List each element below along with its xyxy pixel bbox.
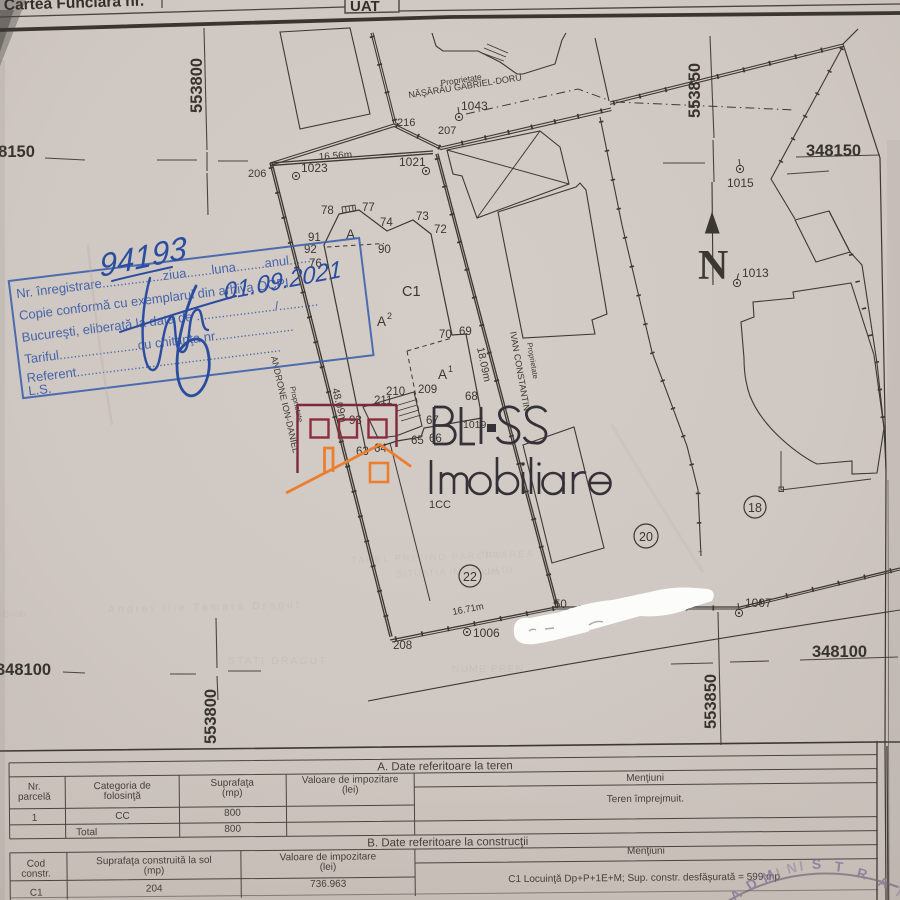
svg-text:800: 800 xyxy=(224,808,241,819)
svg-text:C1: C1 xyxy=(30,888,43,899)
svg-text:65: 65 xyxy=(411,435,424,447)
svg-text:L.S.: L.S. xyxy=(27,381,52,399)
svg-text:1013: 1013 xyxy=(742,266,769,280)
svg-text:208: 208 xyxy=(393,640,412,652)
svg-text:tice: tice xyxy=(482,548,502,560)
svg-text:1043: 1043 xyxy=(461,99,488,113)
svg-text:S: S xyxy=(812,856,822,872)
svg-text:1023: 1023 xyxy=(301,161,328,175)
svg-text:207: 207 xyxy=(438,125,456,137)
svg-text:UAT: UAT xyxy=(350,0,380,15)
svg-text:68: 68 xyxy=(465,391,478,403)
svg-text:CC: CC xyxy=(115,811,130,822)
svg-text:70: 70 xyxy=(439,329,452,341)
svg-text:16.56m: 16.56m xyxy=(318,150,352,163)
svg-text:Menţiuni: Menţiuni xyxy=(627,846,665,857)
svg-text:A. Date referitoare la teren: A. Date referitoare la teren xyxy=(377,760,513,773)
svg-text:(mp): (mp) xyxy=(222,788,243,799)
svg-text:93: 93 xyxy=(349,415,362,427)
svg-text:(lei): (lei) xyxy=(342,785,359,796)
svg-text:1019: 1019 xyxy=(463,419,487,431)
svg-text:348100: 348100 xyxy=(0,661,51,679)
svg-text:74: 74 xyxy=(380,217,393,229)
svg-text:209: 209 xyxy=(418,384,437,396)
svg-text:1CC: 1CC xyxy=(429,499,451,511)
svg-text:1007: 1007 xyxy=(745,596,772,610)
svg-text:Total: Total xyxy=(76,827,97,838)
svg-text:20: 20 xyxy=(639,530,653,544)
svg-text:69: 69 xyxy=(459,326,472,338)
svg-text:553850: 553850 xyxy=(702,674,720,729)
svg-text:348100: 348100 xyxy=(812,643,867,661)
svg-text:78: 78 xyxy=(321,205,334,217)
svg-text:B. Date referitoare la constru: B. Date referitoare la construcţii xyxy=(367,836,528,850)
svg-text:2: 2 xyxy=(387,311,392,321)
svg-text:73: 73 xyxy=(416,211,429,223)
svg-text:90: 90 xyxy=(378,244,391,256)
svg-text:NUME PREN: NUME PREN xyxy=(452,663,524,675)
svg-text:18: 18 xyxy=(748,501,762,515)
svg-text:C1: C1 xyxy=(402,284,421,300)
svg-text:50: 50 xyxy=(554,599,567,611)
svg-text:um: um xyxy=(484,566,501,578)
svg-text:1015: 1015 xyxy=(727,176,754,190)
svg-text:1: 1 xyxy=(448,364,453,374)
svg-text:77: 77 xyxy=(362,202,375,214)
svg-text:A: A xyxy=(377,314,386,329)
svg-text:553850: 553850 xyxy=(686,63,704,118)
svg-text:553800: 553800 xyxy=(188,58,206,113)
svg-text:348150: 348150 xyxy=(806,142,861,160)
svg-text:(lei): (lei) xyxy=(320,862,337,873)
svg-text:Teren împrejmuit.: Teren împrejmuit. xyxy=(607,793,684,805)
svg-text:216: 216 xyxy=(397,117,415,129)
svg-text:206: 206 xyxy=(248,168,266,180)
svg-text:folosinţă: folosinţă xyxy=(104,791,142,802)
svg-text:204: 204 xyxy=(146,883,163,894)
svg-text:1: 1 xyxy=(32,813,38,824)
svg-text:736.963: 736.963 xyxy=(310,879,347,890)
svg-text:parcelă: parcelă xyxy=(18,792,51,803)
svg-text:N: N xyxy=(698,243,728,289)
svg-text:1021: 1021 xyxy=(399,155,426,169)
svg-text:Birou: Birou xyxy=(2,608,27,620)
svg-text:(mp): (mp) xyxy=(144,865,165,876)
svg-text:STATI DRAGUT: STATI DRAGUT xyxy=(228,655,327,667)
svg-text:Menţiuni: Menţiuni xyxy=(626,773,664,784)
svg-text:48150: 48150 xyxy=(0,143,35,161)
svg-text:1006: 1006 xyxy=(473,626,500,640)
svg-text:constr.: constr. xyxy=(21,869,51,880)
svg-text:72: 72 xyxy=(434,224,447,236)
svg-text:800: 800 xyxy=(224,824,241,835)
svg-text:553800: 553800 xyxy=(202,689,220,744)
svg-text:A: A xyxy=(438,367,447,382)
